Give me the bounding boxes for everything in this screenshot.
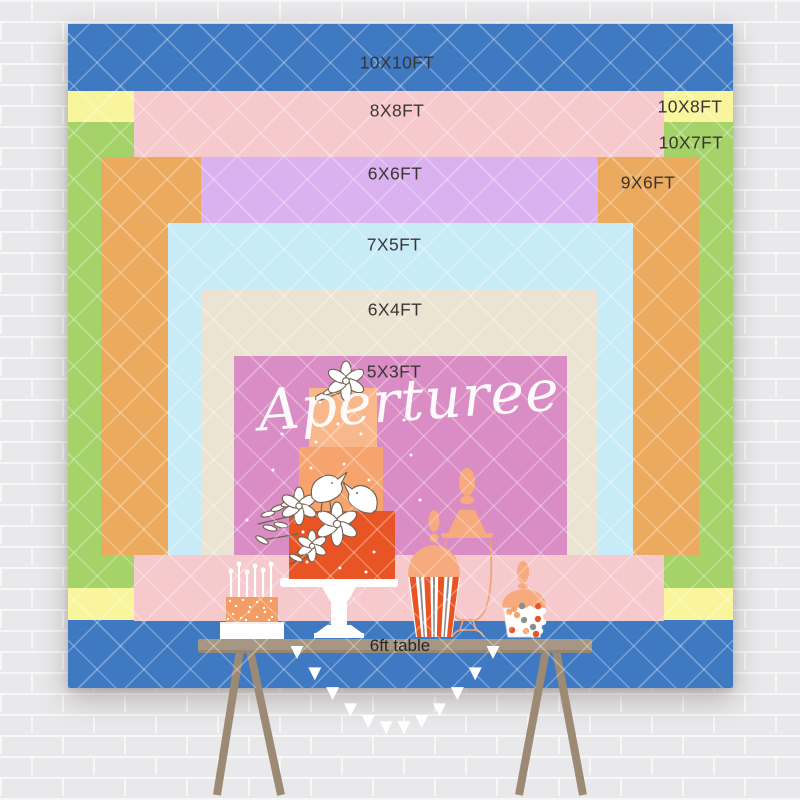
trestle-table [198,639,592,795]
candy-jar [502,561,546,637]
cake-stand [280,578,398,638]
bunting-garland [291,646,500,734]
small-cake [220,562,284,640]
candles [229,562,274,599]
backdrop-size-chart: 6ft table 10X10FT10X8FT10X7FT8X8FT9X6FT6… [0,0,800,800]
